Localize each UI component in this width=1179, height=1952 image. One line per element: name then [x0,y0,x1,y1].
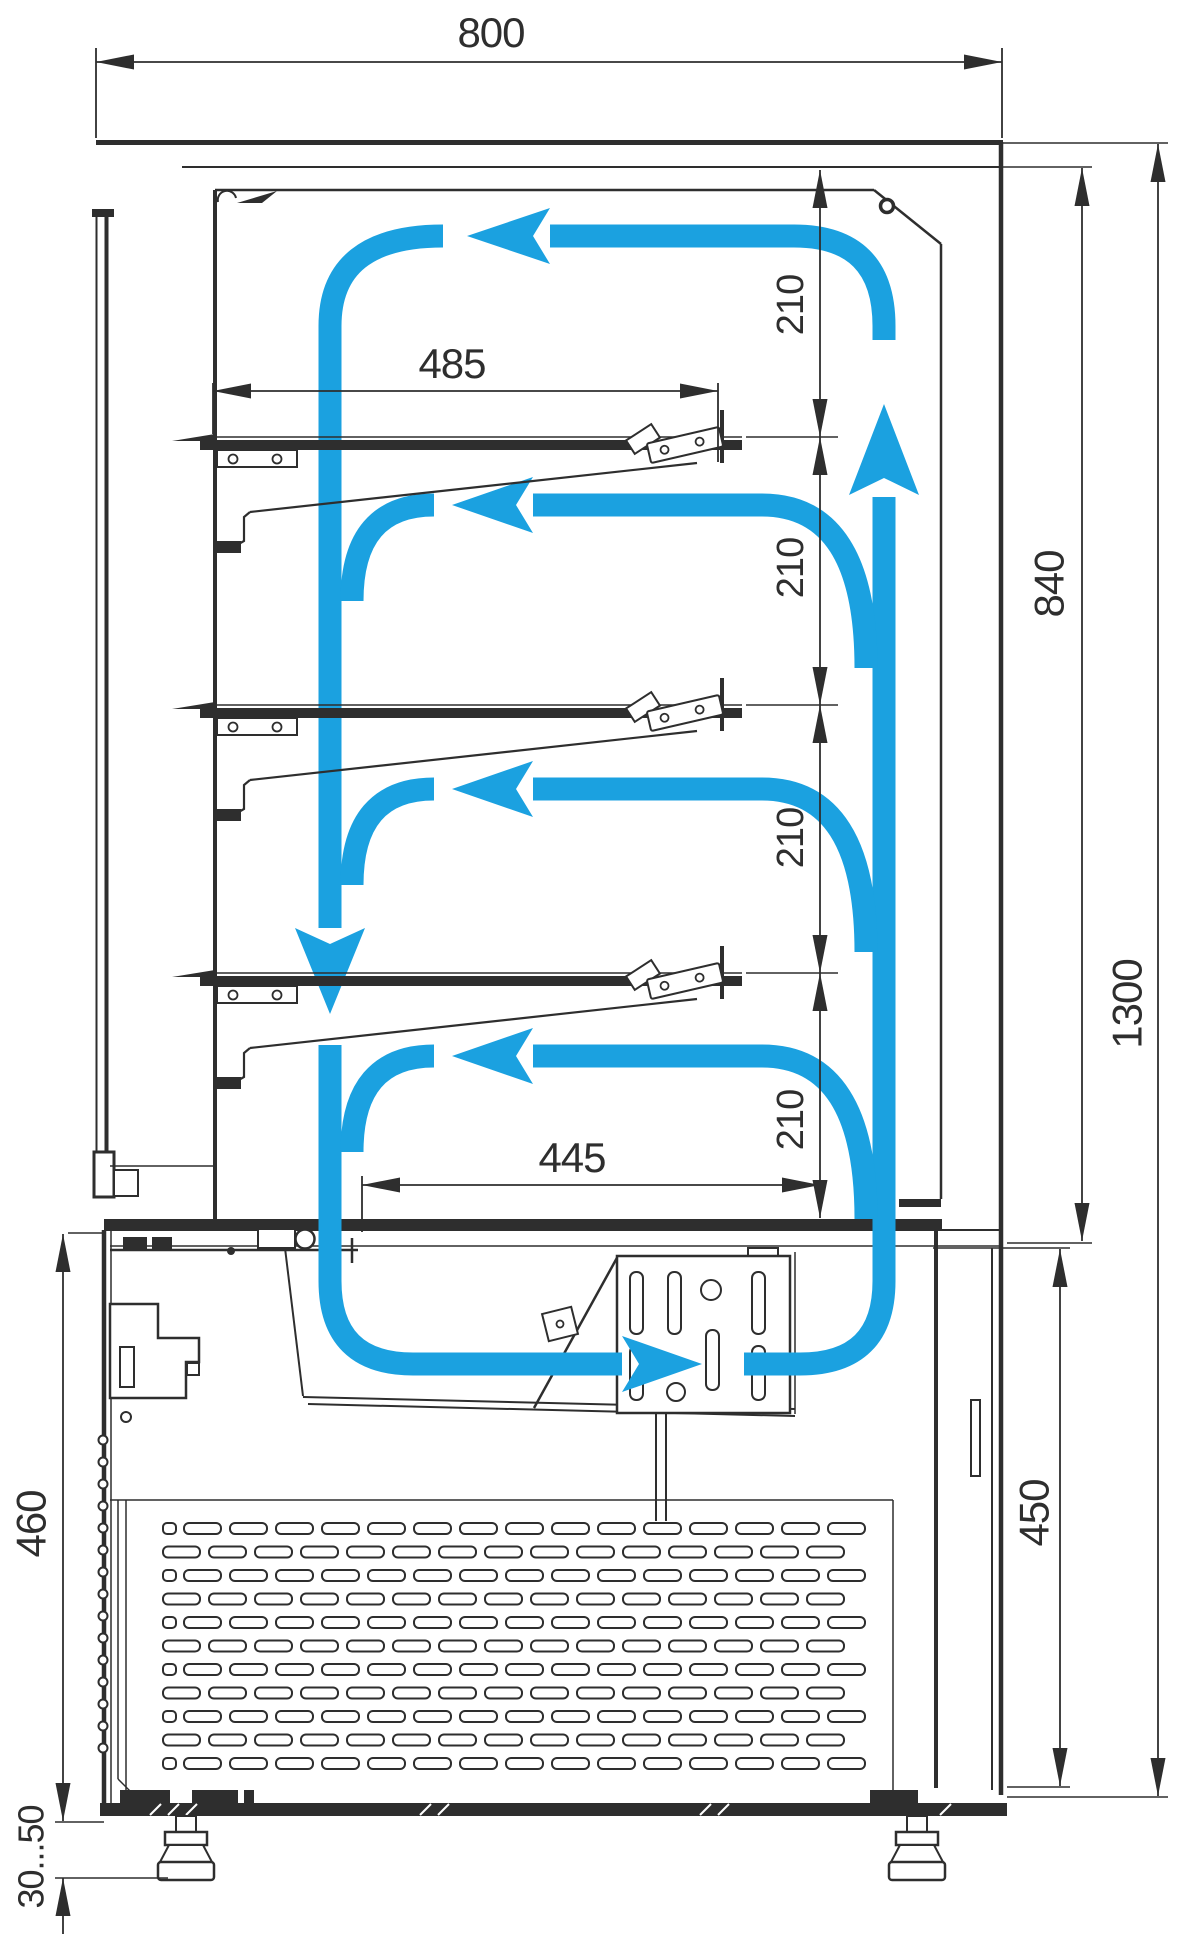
airflow-merge-2 [352,789,434,885]
dimension-condenser-height: 460 [8,1233,105,1822]
airflow-merge-1 [352,505,434,601]
label-leg-adjustment: 30...50 [11,1805,52,1908]
label-display-height: 840 [1026,550,1073,617]
dimension-overall-height: 1300 [1003,143,1168,1797]
top-chamfer [874,190,941,244]
airflow-shelf-stream-2 [533,789,866,952]
label-overall-width: 800 [457,9,524,56]
label-shelf-width: 485 [418,340,485,387]
label-gap-3: 210 [770,808,812,868]
airflow-arrow-top [467,208,550,264]
cabinet-structure [92,140,1007,1880]
partition-tab [542,1307,578,1341]
airflow [295,208,919,1392]
dimension-leg-adjustment: 30...50 [11,1805,169,1934]
hinge-bumps [99,1436,108,1753]
drawing-canvas: 800 485 445 [0,0,1179,1952]
label-lower-shelf-width: 445 [538,1134,605,1181]
base-bottom [100,1803,1007,1816]
shelf-3 [172,946,742,1089]
door-roller-bracket [258,1229,295,1248]
dimension-base-height: 450 [1001,1248,1070,1787]
glass-foot [94,1152,114,1197]
dimension-overall-width: 800 [96,9,1002,138]
label-condenser-height: 460 [8,1490,55,1557]
airflow-arrow-shelf-2 [452,761,533,817]
label-gap-4: 210 [770,1090,812,1150]
airflow-arrow-shelf-3 [452,1028,533,1084]
door-roller [296,1230,315,1249]
label-gap-1: 210 [770,275,812,335]
fan-panel [617,1256,790,1413]
cabinet-top [96,140,1003,145]
shelf-1 [172,410,742,553]
label-base-height: 450 [1011,1479,1058,1546]
airflow-top-stream [550,236,884,340]
dimension-lower-shelf-width: 445 [362,1134,820,1232]
lamp-bracket [237,191,277,203]
dimension-display-height: 840 [1003,167,1092,1243]
label-gap-2: 210 [770,538,812,598]
airflow-arrow-down [295,928,365,1014]
screw [881,200,894,213]
louver-grille [163,1523,865,1769]
display-deck [104,1219,942,1231]
leg-right [889,1816,945,1880]
label-overall-height: 1300 [1104,959,1151,1048]
display-case-section-drawing: 800 485 445 [0,0,1179,1952]
airflow-merge-3 [352,1056,434,1152]
leg-left [158,1816,214,1880]
airflow-arrow-up [849,404,919,495]
airflow-shelf-stream-1 [533,505,866,668]
